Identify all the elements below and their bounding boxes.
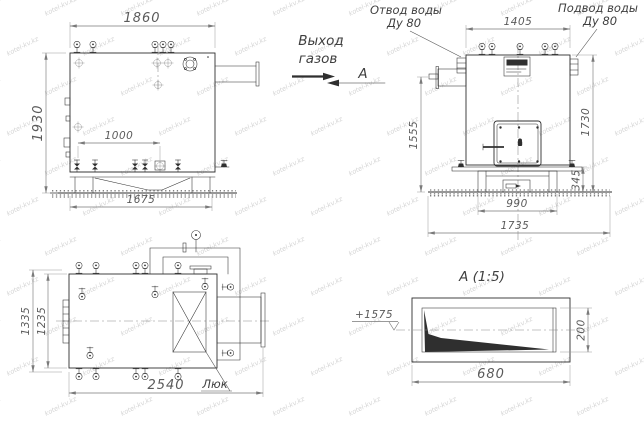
valve-icon (142, 262, 148, 274)
svg-text:kotel-kv.kz: kotel-kv.kz (499, 315, 534, 338)
valve-icon (76, 262, 82, 274)
svg-text:kotel-kv.kz: kotel-kv.kz (613, 35, 644, 58)
svg-text:kotel-kv.kz: kotel-kv.kz (43, 315, 78, 338)
flanged-port (183, 57, 197, 71)
section-arrow-letter: А (357, 66, 367, 82)
boiler-drawing: kotel-kv.kzkotel-kv.kzkotel-kv.kzkotel-k… (0, 0, 644, 430)
dim-front-base-width: 990 (506, 198, 528, 210)
svg-text:kotel-kv.kz: kotel-kv.kz (271, 395, 306, 418)
svg-text:kotel-kv.kz: kotel-kv.kz (195, 75, 230, 98)
svg-text:kotel-kv.kz: kotel-kv.kz (157, 195, 192, 218)
dim-front-top-width: 1405 (504, 16, 533, 28)
svg-text:kotel-kv.kz: kotel-kv.kz (499, 235, 534, 258)
section-title: А (1:5) (458, 269, 505, 285)
svg-text:kotel-kv.kz: kotel-kv.kz (385, 275, 420, 298)
svg-text:kotel-kv.kz: kotel-kv.kz (43, 155, 78, 178)
svg-text:kotel-kv.kz: kotel-kv.kz (385, 355, 420, 378)
svg-text:kotel-kv.kz: kotel-kv.kz (423, 155, 458, 178)
svg-text:kotel-kv.kz: kotel-kv.kz (0, 75, 2, 98)
svg-text:+1575: +1575 (355, 309, 393, 321)
svg-text:kotel-kv.kz: kotel-kv.kz (195, 315, 230, 338)
svg-text:kotel-kv.kz: kotel-kv.kz (271, 0, 306, 18)
svg-text:kotel-kv.kz: kotel-kv.kz (537, 355, 572, 378)
svg-text:kotel-kv.kz: kotel-kv.kz (157, 355, 192, 378)
svg-text:kotel-kv.kz: kotel-kv.kz (575, 395, 610, 418)
drain-valve-icon (175, 160, 181, 172)
svg-text:kotel-kv.kz: kotel-kv.kz (347, 155, 382, 178)
svg-text:kotel-kv.kz: kotel-kv.kz (119, 235, 154, 258)
dim-front-right-height: 1730 (580, 108, 592, 137)
svg-text:kotel-kv.kz: kotel-kv.kz (613, 115, 644, 138)
svg-text:kotel-kv.kz: kotel-kv.kz (5, 35, 40, 58)
nameplate (504, 57, 530, 76)
ash-box (478, 171, 557, 192)
svg-text:kotel-kv.kz: kotel-kv.kz (309, 275, 344, 298)
valve-icon (74, 41, 80, 53)
svg-text:kotel-kv.kz: kotel-kv.kz (499, 75, 534, 98)
label-water-outlet-line1: Отвод воды (370, 3, 442, 17)
label-gas-outlet-line1: Выход (298, 33, 344, 49)
svg-text:kotel-kv.kz: kotel-kv.kz (309, 115, 344, 138)
flange-connection-plan (190, 266, 211, 274)
dim-front-left-height: 1555 (408, 121, 420, 150)
svg-text:kotel-kv.kz: kotel-kv.kz (309, 195, 344, 218)
svg-text:kotel-kv.kz: kotel-kv.kz (461, 115, 496, 138)
valve-icon (175, 262, 181, 274)
svg-text:kotel-kv.kz: kotel-kv.kz (5, 275, 40, 298)
svg-text:kotel-kv.kz: kotel-kv.kz (499, 395, 534, 418)
water-inlet-leader (576, 29, 597, 57)
svg-text:kotel-kv.kz: kotel-kv.kz (195, 235, 230, 258)
svg-text:kotel-kv.kz: kotel-kv.kz (233, 195, 268, 218)
dim-front-overall-width: 1735 (501, 220, 530, 232)
section-arrow-icon (327, 80, 339, 87)
svg-text:kotel-kv.kz: kotel-kv.kz (157, 35, 192, 58)
svg-text:kotel-kv.kz: kotel-kv.kz (119, 75, 154, 98)
dim-plan-outer-height: 1335 (20, 307, 32, 336)
drawing-sheet: kotel-kv.kzkotel-kv.kzkotel-kv.kzkotel-k… (0, 0, 644, 430)
dim-side-left-height: 1930 (31, 104, 46, 141)
svg-text:kotel-kv.kz: kotel-kv.kz (81, 35, 116, 58)
svg-text:kotel-kv.kz: kotel-kv.kz (271, 155, 306, 178)
svg-text:kotel-kv.kz: kotel-kv.kz (271, 75, 306, 98)
svg-text:kotel-kv.kz: kotel-kv.kz (385, 195, 420, 218)
svg-text:kotel-kv.kz: kotel-kv.kz (233, 275, 268, 298)
valve-icon (133, 262, 139, 274)
drain-valve-icon (92, 160, 98, 172)
valve-icon (87, 347, 93, 359)
valve-icon (222, 284, 234, 290)
side-view: 1860 1930 1000 1675 (31, 11, 259, 211)
dim-side-inner-width: 1000 (105, 130, 134, 142)
svg-text:kotel-kv.kz: kotel-kv.kz (81, 195, 116, 218)
svg-text:kotel-kv.kz: kotel-kv.kz (43, 0, 78, 18)
svg-text:kotel-kv.kz: kotel-kv.kz (119, 315, 154, 338)
svg-text:kotel-kv.kz: kotel-kv.kz (0, 0, 2, 18)
label-water-inlet-line1: Подвод воды (558, 1, 638, 15)
dim-side-base-width: 1675 (127, 194, 156, 206)
svg-text:kotel-kv.kz: kotel-kv.kz (81, 355, 116, 378)
svg-text:kotel-kv.kz: kotel-kv.kz (157, 115, 192, 138)
label-water-inlet-line2: Ду 80 (582, 14, 617, 28)
svg-text:kotel-kv.kz: kotel-kv.kz (5, 355, 40, 378)
foot-icon (458, 161, 464, 168)
dim-section-height: 200 (576, 319, 588, 341)
svg-text:kotel-kv.kz: kotel-kv.kz (537, 195, 572, 218)
svg-text:kotel-kv.kz: kotel-kv.kz (0, 155, 2, 178)
svg-text:kotel-kv.kz: kotel-kv.kz (271, 235, 306, 258)
svg-text:kotel-kv.kz: kotel-kv.kz (271, 315, 306, 338)
svg-text:kotel-kv.kz: kotel-kv.kz (575, 235, 610, 258)
svg-text:kotel-kv.kz: kotel-kv.kz (613, 195, 644, 218)
svg-text:kotel-kv.kz: kotel-kv.kz (43, 235, 78, 258)
dim-section-width: 680 (477, 367, 505, 382)
svg-text:kotel-kv.kz: kotel-kv.kz (43, 395, 78, 418)
svg-text:kotel-kv.kz: kotel-kv.kz (233, 35, 268, 58)
svg-text:kotel-kv.kz: kotel-kv.kz (423, 235, 458, 258)
valve-icon (202, 278, 208, 290)
svg-text:kotel-kv.kz: kotel-kv.kz (119, 155, 154, 178)
dim-plan-inner-height: 1235 (36, 307, 48, 336)
svg-text:kotel-kv.kz: kotel-kv.kz (537, 275, 572, 298)
water-outlet-leader (410, 31, 461, 57)
svg-text:kotel-kv.kz: kotel-kv.kz (81, 275, 116, 298)
svg-text:kotel-kv.kz: kotel-kv.kz (195, 395, 230, 418)
svg-text:kotel-kv.kz: kotel-kv.kz (0, 315, 2, 338)
label-hatch: Люк (201, 377, 227, 391)
valve-icon (222, 350, 234, 356)
svg-text:kotel-kv.kz: kotel-kv.kz (347, 395, 382, 418)
label-water-outlet-line2: Ду 80 (386, 16, 421, 30)
label-gas-outlet-line2: газов (299, 51, 338, 67)
valve-icon (93, 262, 99, 274)
svg-text:kotel-kv.kz: kotel-kv.kz (5, 195, 40, 218)
gas-outlet-note: Выход газов (292, 33, 344, 80)
water-inlet-flange (570, 59, 578, 75)
svg-text:kotel-kv.kz: kotel-kv.kz (0, 395, 2, 418)
svg-text:kotel-kv.kz: kotel-kv.kz (43, 75, 78, 98)
valve-icon (133, 368, 139, 380)
svg-text:kotel-kv.kz: kotel-kv.kz (309, 355, 344, 378)
svg-text:kotel-kv.kz: kotel-kv.kz (385, 35, 420, 58)
dim-plan-overall-length: 2540 (147, 378, 184, 393)
svg-text:kotel-kv.kz: kotel-kv.kz (0, 235, 2, 258)
svg-text:kotel-kv.kz: kotel-kv.kz (423, 395, 458, 418)
dim-front-base-height: 345 (571, 169, 583, 191)
svg-text:kotel-kv.kz: kotel-kv.kz (613, 355, 644, 378)
svg-text:kotel-kv.kz: kotel-kv.kz (537, 115, 572, 138)
svg-text:kotel-kv.kz: kotel-kv.kz (347, 235, 382, 258)
svg-text:kotel-kv.kz: kotel-kv.kz (233, 115, 268, 138)
svg-text:kotel-kv.kz: kotel-kv.kz (119, 395, 154, 418)
svg-text:kotel-kv.kz: kotel-kv.kz (157, 275, 192, 298)
water-outlet-flange (457, 58, 466, 73)
svg-text:kotel-kv.kz: kotel-kv.kz (461, 195, 496, 218)
gas-outlet-pipe-flange (256, 62, 259, 86)
dim-side-top-width: 1860 (123, 11, 160, 26)
svg-text:kotel-kv.kz: kotel-kv.kz (613, 275, 644, 298)
hatch-cross (173, 292, 206, 352)
svg-text:kotel-kv.kz: kotel-kv.kz (195, 0, 230, 18)
